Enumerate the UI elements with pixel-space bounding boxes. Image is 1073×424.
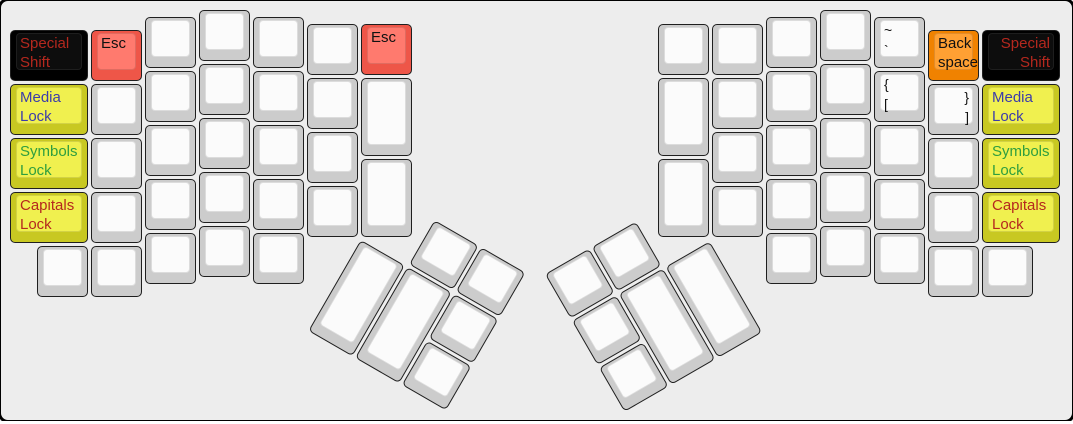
page: Special ShiftEscEscMedia LockSymbols Loc… — [0, 0, 1073, 424]
keytop — [598, 227, 650, 279]
keytop — [551, 254, 603, 306]
keyboard-canvas: Special ShiftEscEscMedia LockSymbols Loc… — [0, 0, 1073, 421]
